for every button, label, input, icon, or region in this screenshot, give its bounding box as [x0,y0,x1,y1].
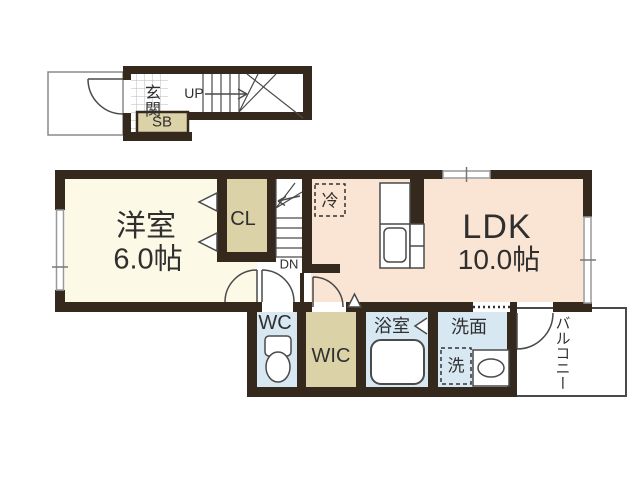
shoebox-label: SB [152,115,172,130]
bathtub-icon [371,340,424,384]
closet-label: CL [230,209,256,229]
stairs-up-arrow [205,89,247,99]
western-room-label: 洋室 [116,212,176,242]
porch-area [48,72,123,135]
stairs-down-treads [276,183,302,248]
stairs-up-label: UP [184,86,203,100]
kitchen-sink [384,228,406,262]
western-room-size: 6.0帖 [113,246,182,275]
washer-label: 洗 [448,358,465,375]
floor-plan: 玄関 UP SB 洋室 6.0帖 CL DN 冷 LDK 10.0帖 WC WI… [0,0,640,480]
western-room-window [57,210,64,290]
wc-label: WC [258,313,291,333]
ldk-area [311,179,583,302]
stairs-up-treads [203,74,303,118]
bath-label: 浴室 [374,317,410,335]
sink-icon [473,350,509,386]
washroom-label: 洗面 [451,318,487,336]
balcony-label: バルコニー [555,316,570,391]
toilet-icon [265,336,291,382]
stairs-down-label: DN [280,258,299,271]
floor-plan-drawing [0,0,640,480]
wic-label: WIC [312,346,351,366]
ldk-size: 10.0帖 [458,246,541,274]
fridge-label: 冷 [322,193,339,210]
ldk-label: LDK [462,210,531,244]
balcony-area [516,308,626,396]
